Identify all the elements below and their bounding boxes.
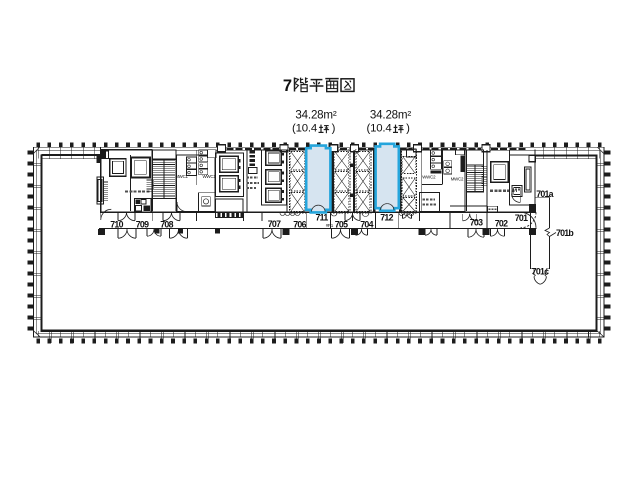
svg-text:703: 703 xyxy=(470,218,483,228)
svg-text:706: 706 xyxy=(293,219,306,229)
svg-text:712: 712 xyxy=(380,212,393,222)
svg-text:WWC2: WWC2 xyxy=(422,175,436,180)
svg-text:7: 7 xyxy=(283,77,292,95)
svg-text:708: 708 xyxy=(160,219,173,229)
svg-text:702: 702 xyxy=(495,219,508,229)
svg-text:710: 710 xyxy=(110,219,123,229)
svg-text:WWC1: WWC1 xyxy=(202,174,216,179)
svg-text:701b: 701b xyxy=(556,228,574,238)
svg-text:701: 701 xyxy=(515,213,528,223)
svg-text:709: 709 xyxy=(136,219,149,229)
svg-text:MWC2: MWC2 xyxy=(451,177,464,182)
svg-text:34.28m²: 34.28m² xyxy=(370,108,411,121)
svg-text:): ) xyxy=(406,123,410,135)
svg-text:707: 707 xyxy=(268,219,281,229)
svg-text:(10.4: (10.4 xyxy=(367,123,392,135)
svg-text:701a: 701a xyxy=(536,189,553,199)
svg-text:(10.4: (10.4 xyxy=(292,123,317,135)
svg-text:MWC1: MWC1 xyxy=(175,174,188,179)
svg-text:704: 704 xyxy=(360,219,373,229)
svg-text:705: 705 xyxy=(335,219,348,229)
svg-text:): ) xyxy=(332,123,336,135)
svg-text:711: 711 xyxy=(316,212,329,222)
svg-text:#F1: #F1 xyxy=(326,223,334,228)
svg-text:34.28m²: 34.28m² xyxy=(295,108,336,121)
svg-text:701c: 701c xyxy=(532,267,549,277)
